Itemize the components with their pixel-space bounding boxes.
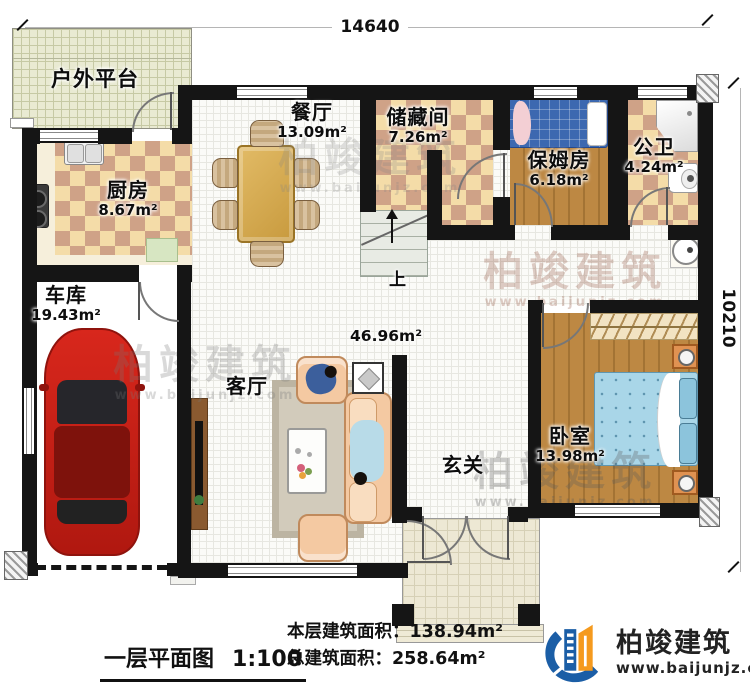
plan-title-text: 一层平面图 — [104, 647, 214, 672]
wall — [528, 503, 575, 518]
hatch-block — [4, 551, 28, 580]
wall — [177, 265, 191, 563]
nanny-bed-pillow — [587, 102, 607, 146]
floor-plan-canvas: 14640 10210 — [0, 0, 750, 694]
nightstand — [672, 344, 698, 369]
door-leaf — [503, 153, 505, 197]
nanny-bed — [508, 98, 608, 148]
dining-chair — [294, 200, 320, 230]
right-dimension-line — [740, 88, 741, 572]
room-label-garage: 车库 19.43m² — [18, 285, 114, 323]
nanny-bed-blanket — [513, 101, 531, 145]
floor-area-line: 本层建筑面积：138.94m² — [287, 619, 503, 646]
area-summary: 本层建筑面积：138.94m² 总建筑面积：258.64m² — [287, 619, 503, 673]
total-area-line: 总建筑面积：258.64m² — [287, 646, 503, 673]
door-leaf — [170, 92, 172, 130]
porch-column — [518, 604, 540, 626]
room-label-bedroom: 卧室 13.98m² — [518, 426, 622, 464]
wall — [22, 128, 37, 563]
wall — [178, 85, 192, 143]
door-leaf — [407, 561, 450, 563]
side-table-lamp — [352, 362, 384, 394]
room-label-nanny: 保姆房 6.18m² — [507, 150, 611, 188]
window — [40, 128, 98, 143]
wall — [392, 355, 407, 523]
room-label-storage: 储藏间 7.26m² — [368, 107, 468, 145]
top-dimension-label: 14640 — [332, 17, 408, 37]
brand-logo: 柏竣建筑 www.baijunjz.com — [540, 616, 750, 690]
door-leaf — [138, 282, 140, 320]
hatch-block — [696, 74, 719, 103]
dining-chair — [212, 200, 238, 230]
room-label-platform: 户外平台 — [30, 68, 160, 91]
shower-drain — [687, 111, 692, 116]
stairs-up-arrow-head — [386, 209, 398, 219]
staircase — [360, 210, 428, 277]
right-dimension-label: 10210 — [718, 288, 738, 348]
dimension-tick — [701, 14, 713, 26]
dining-table — [237, 145, 295, 243]
window — [228, 563, 357, 578]
wardrobe — [590, 313, 698, 340]
wall — [167, 563, 191, 576]
dining-chair — [250, 241, 284, 267]
brand-logo-icon — [540, 616, 606, 690]
wall — [668, 225, 713, 240]
room-label-foyer: 玄关 — [434, 455, 492, 477]
stairs-up-arrow — [391, 219, 393, 243]
car-cockpit — [54, 426, 130, 498]
wall — [493, 85, 510, 150]
window — [575, 503, 660, 518]
armchair — [298, 514, 348, 562]
brand-name: 柏竣建筑 — [616, 629, 750, 659]
door-leaf — [507, 516, 509, 559]
window — [638, 85, 687, 100]
washbasin — [672, 237, 700, 265]
car — [44, 328, 140, 556]
wall — [528, 300, 541, 517]
door-leaf — [542, 303, 544, 347]
dining-chair — [212, 158, 238, 188]
door-leaf — [666, 187, 668, 225]
garage-door-dashed — [36, 565, 167, 570]
wall — [360, 85, 376, 212]
dimension-tick — [727, 77, 739, 89]
nightstand — [672, 470, 698, 495]
living-area-value: 46.96m² — [348, 328, 424, 345]
tv — [195, 421, 203, 505]
wall — [22, 128, 40, 144]
window — [534, 85, 577, 100]
room-label-kitchen: 厨房 8.67m² — [78, 180, 178, 218]
room-label-bath: 公卫 4.24m² — [606, 137, 702, 175]
room-label-dining: 餐厅 13.09m² — [262, 102, 362, 140]
flower-bouquet — [297, 464, 305, 472]
wall — [551, 225, 630, 240]
wall — [590, 300, 713, 313]
wall — [98, 128, 132, 144]
bed-pillow — [679, 378, 697, 419]
stairs-up-label: 上 — [380, 271, 416, 289]
dining-chair — [294, 158, 320, 188]
person-lying — [350, 420, 384, 482]
window — [22, 388, 36, 454]
door-leaf — [514, 183, 516, 225]
platform-step — [10, 118, 34, 128]
wall — [357, 563, 408, 578]
dimension-tick — [727, 561, 739, 573]
plant — [194, 495, 204, 505]
plan-title: 一层平面图1:100 — [100, 641, 306, 682]
wall — [442, 225, 515, 240]
brand-website: www.baijunjz.com — [616, 659, 750, 677]
hatch-block — [699, 497, 720, 527]
car-mirror — [135, 384, 145, 391]
bed-pillow — [679, 423, 697, 464]
coffee-table — [287, 428, 327, 494]
wall — [427, 150, 442, 240]
car-windshield — [57, 380, 127, 424]
tv-cabinet — [191, 398, 208, 530]
door-leaf — [422, 516, 424, 559]
wall — [508, 507, 528, 522]
window — [237, 85, 307, 100]
bed-sheet-fold — [657, 373, 680, 467]
car-mirror — [39, 384, 49, 391]
car-rear-window — [57, 500, 127, 524]
wall — [22, 265, 139, 282]
kitchen-mat — [146, 238, 178, 262]
room-label-living: 客厅 — [218, 376, 276, 398]
